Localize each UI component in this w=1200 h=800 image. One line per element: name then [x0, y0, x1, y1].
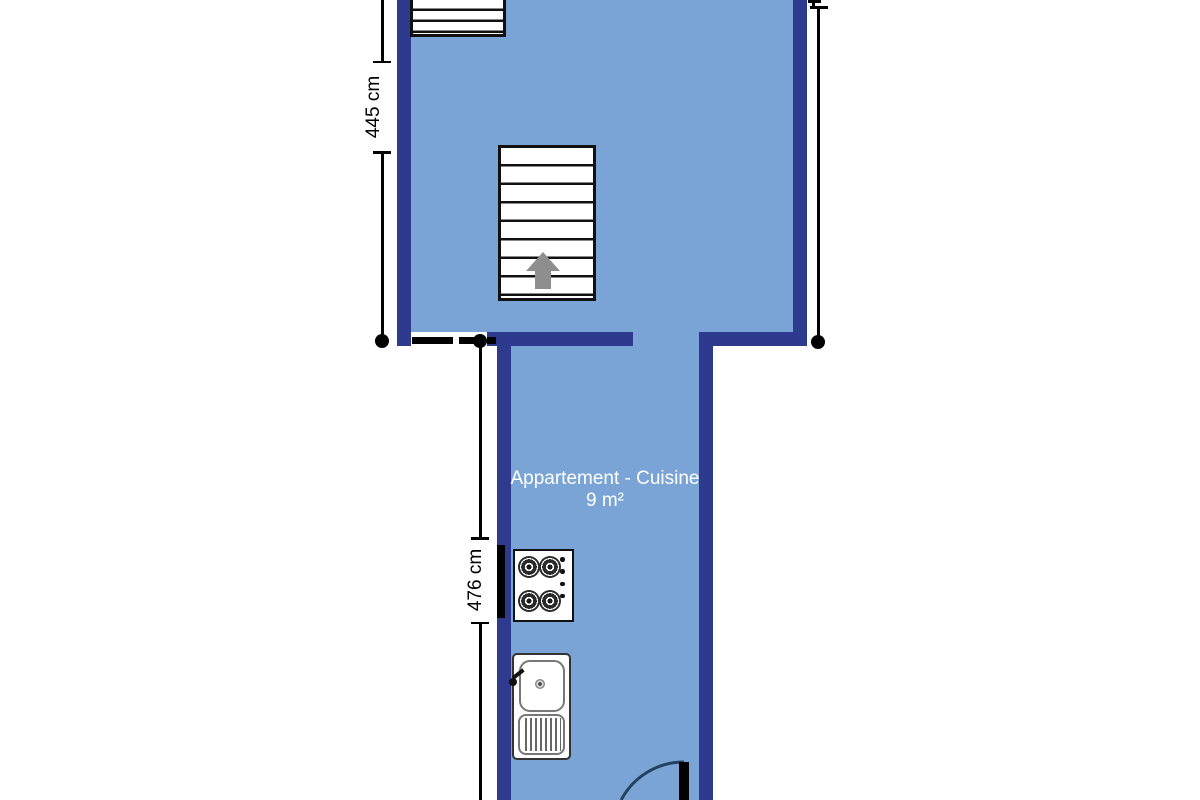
- wall-upper-left: [397, 0, 411, 346]
- sink-faucet-base: [509, 678, 517, 686]
- wall-upper-right: [793, 0, 807, 346]
- room-label: Appartement - Cuisine 9 m²: [505, 468, 705, 512]
- stove-knob: [560, 594, 565, 599]
- wall-bottom-left-segment: [487, 332, 633, 346]
- dimension-endpoint-dot: [473, 334, 487, 348]
- staircase-small-icon: [410, 0, 506, 37]
- room-area: 9 m²: [505, 490, 705, 512]
- sink-drainboard-ribs: [522, 718, 561, 751]
- dimension-label-445: 445 cm: [363, 57, 385, 157]
- wall-bottom-right-segment: [699, 332, 807, 346]
- dimension-line-445-upper-segment: [381, 0, 384, 62]
- floor-plan-canvas: 445 cm 476 cm Appartement - Cuisine 9 m²: [0, 0, 1200, 800]
- stairs-up-arrow-icon: [526, 252, 560, 271]
- stove-knob: [560, 557, 565, 562]
- stove-burner: [539, 590, 561, 612]
- stairs-up-arrow-shaft: [535, 270, 551, 289]
- dimension-line-445-lower-segment: [381, 153, 384, 335]
- dimension-line-right-segment: [817, 9, 820, 336]
- stove-burner: [518, 590, 540, 612]
- wall-marker-bar: [497, 545, 505, 618]
- sink-drainboard: [518, 714, 565, 755]
- stove-knob: [560, 569, 565, 574]
- room-name: Appartement - Cuisine: [505, 468, 705, 490]
- stove-burner: [518, 556, 540, 578]
- dimension-line-476-upper-segment: [479, 347, 482, 538]
- door-leaf-icon: [679, 762, 689, 800]
- dimension-endpoint-dot: [811, 335, 825, 349]
- stove-knob: [560, 582, 565, 587]
- wall-kitchen-right: [699, 346, 713, 800]
- dimension-endpoint-dot: [375, 334, 389, 348]
- stove-burner: [539, 556, 561, 578]
- upper-room-floor: [411, 0, 793, 334]
- sink-drain: [535, 679, 545, 689]
- dashed-wall-opening: [412, 337, 453, 344]
- dimension-line-476-lower-segment: [479, 624, 482, 800]
- dashed-wall-opening: [487, 337, 496, 344]
- dimension-label-476: 476 cm: [465, 530, 487, 630]
